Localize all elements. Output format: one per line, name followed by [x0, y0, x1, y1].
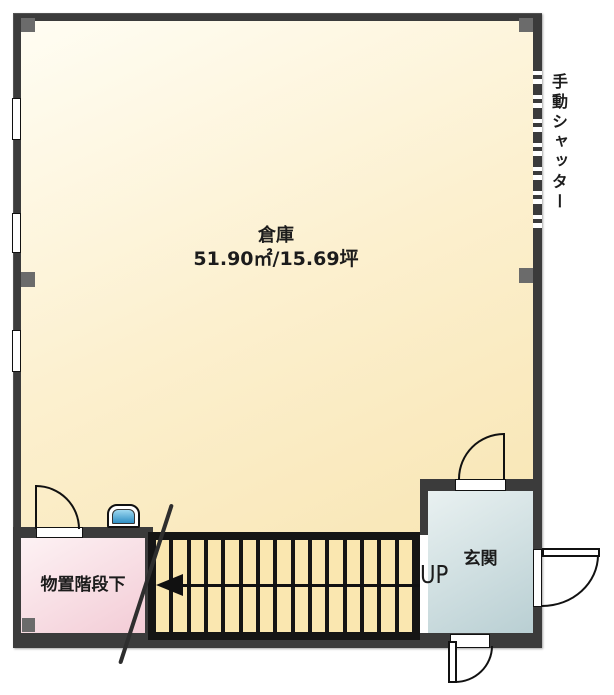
shutter-dashed-icon [533, 60, 542, 238]
pillar-icon [21, 18, 35, 32]
door-sill [533, 549, 542, 607]
window-icon [12, 213, 21, 253]
pillar-icon [21, 272, 35, 287]
shutter-label: 手動シャッター [546, 73, 570, 233]
window-icon [12, 98, 21, 140]
warehouse-name: 倉庫 [176, 224, 376, 247]
door-swing-arc-icon [455, 646, 493, 683]
storage-label: 物置階段下 [20, 570, 146, 595]
arrow-left-icon [156, 574, 183, 596]
warehouse-label: 倉庫 51.90㎡/15.69坪 [176, 224, 376, 272]
stairs-up-label: UP [420, 560, 448, 589]
window-icon [12, 330, 21, 372]
door-swing-arc-icon [542, 555, 599, 607]
door-sill [455, 479, 506, 491]
pillar-icon [519, 18, 533, 32]
pillar-icon [519, 268, 533, 283]
pillar-icon [22, 618, 35, 632]
warehouse-area: 51.90㎡/15.69坪 [176, 247, 376, 272]
stairs-direction-arrow [178, 584, 420, 587]
floor-plan: 手動シャッター 倉庫 51.90㎡/15.69坪 物置階段下 玄関 UP [0, 0, 614, 695]
basin-fixture-icon [112, 509, 135, 524]
entrance-left-wall [420, 491, 428, 535]
